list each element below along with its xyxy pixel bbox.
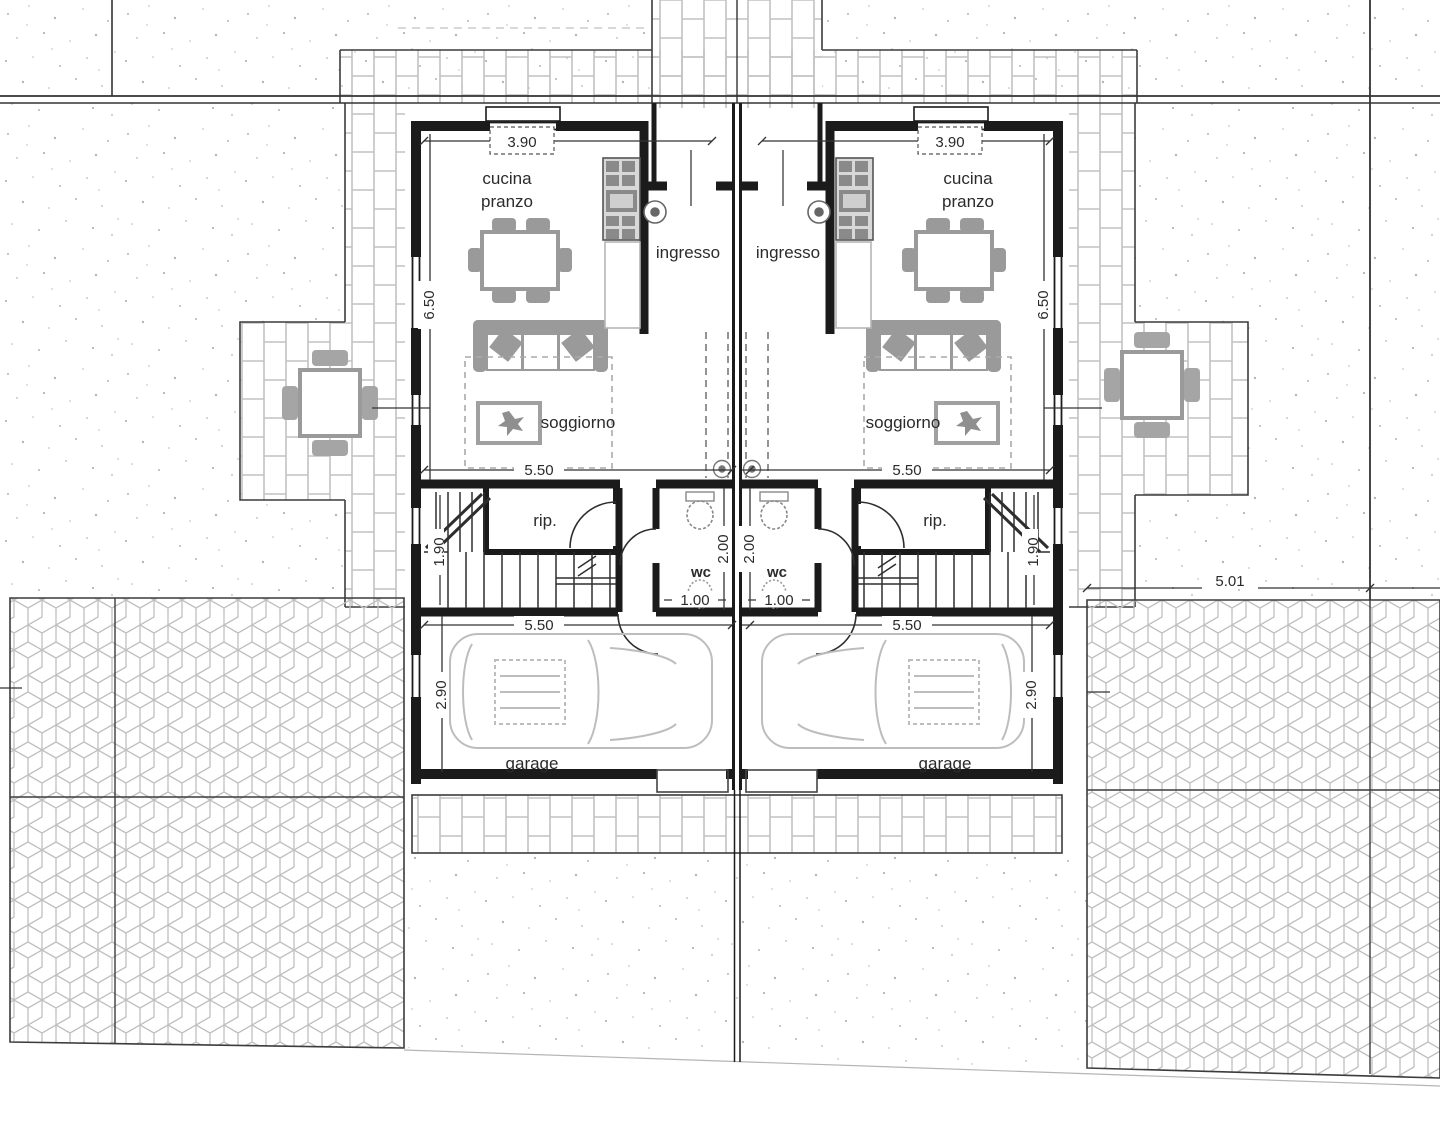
right-unit-plant-table [936, 403, 998, 443]
site-honeycomb-right [1087, 600, 1440, 1078]
left-room-label-entrance: ingresso [656, 243, 720, 262]
left-unit-boiler-icon [644, 201, 666, 223]
right-dim-garage-width: 5.50 [892, 617, 921, 634]
right-unit-stove [836, 158, 873, 328]
right-dim-stair: 1.90 [1025, 537, 1042, 566]
right-dim-garage-height: 2.90 [1023, 680, 1040, 709]
left-unit-dining-table [468, 218, 572, 303]
left-dim-wc-depth: 2.00 [715, 534, 732, 563]
left-room-label-living: soggiorno [541, 413, 616, 432]
left-room-label-kitchen-2: pranzo [481, 192, 533, 211]
left-room-label-garage: garage [506, 754, 559, 773]
right-dim-wc-depth: 2.00 [741, 534, 758, 563]
left-dim-living-width: 5.50 [524, 462, 553, 479]
left-room-label-storage: rip. [533, 511, 557, 530]
right-dim-living-width: 5.50 [892, 462, 921, 479]
right-dim-top-width: 3.90 [935, 134, 964, 151]
right-unit-dining-table [902, 218, 1006, 303]
left-unit-light-point-icon [714, 461, 731, 478]
left-dim-side-height: 6.50 [421, 290, 438, 319]
right-room-label-storage: rip. [923, 511, 947, 530]
right-room-label-kitchen-1: cucina [943, 169, 993, 188]
left-room-label-wc: wc [690, 564, 711, 581]
right-room-label-wc: wc [766, 564, 787, 581]
left-dim-top-width: 3.90 [507, 134, 536, 151]
right-room-label-living: soggiorno [866, 413, 941, 432]
right-room-label-kitchen-2: pranzo [942, 192, 994, 211]
right-unit-sofa [866, 320, 1001, 372]
right-dim-side-height: 6.50 [1035, 290, 1052, 319]
left-room-label-kitchen-1: cucina [482, 169, 532, 188]
floor-plan-drawing: 3.90 6.50 cucina pranzo ingresso soggior… [0, 0, 1440, 1131]
right-dim-wc-width: 1.00 [764, 592, 793, 609]
right-unit-light-point-icon [744, 461, 761, 478]
right-room-label-entrance: ingresso [756, 243, 820, 262]
left-dim-garage-width: 5.50 [524, 617, 553, 634]
left-dim-wc-width: 1.00 [680, 592, 709, 609]
left-unit-plant-table [478, 403, 540, 443]
site-honeycomb-left [10, 598, 404, 1048]
left-unit-sofa [473, 320, 608, 372]
right-room-label-garage: garage [919, 754, 972, 773]
right-unit-boiler-icon [808, 201, 830, 223]
left-unit-stove [603, 158, 640, 328]
floor-plan-scan: 3.90 6.50 cucina pranzo ingresso soggior… [0, 0, 1440, 1131]
left-dim-garage-height: 2.90 [433, 680, 450, 709]
left-dim-stair: 1.90 [431, 537, 448, 566]
site-dim-side-offset: 5.01 [1215, 573, 1244, 590]
